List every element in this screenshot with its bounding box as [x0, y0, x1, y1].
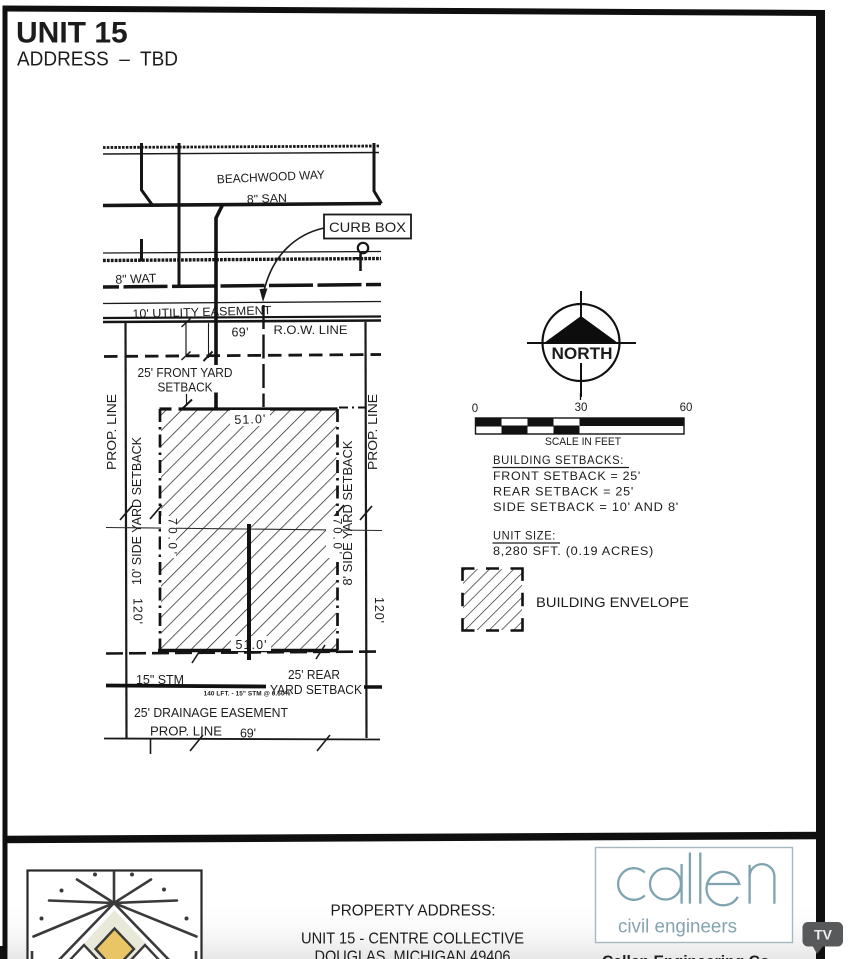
- svg-text:PROP. LINE: PROP. LINE: [365, 394, 380, 470]
- svg-text:DOUGLAS, MICHIGAN 49406: DOUGLAS, MICHIGAN 49406: [315, 949, 511, 959]
- svg-text:SCALE IN FEET: SCALE IN FEET: [545, 436, 621, 448]
- svg-text:UNIT SIZE:: UNIT SIZE:: [493, 529, 556, 543]
- svg-text:8" WAT: 8" WAT: [115, 271, 157, 286]
- svg-text:0: 0: [472, 403, 478, 415]
- svg-text:8,280 SFT. (0.19 ACRES): 8,280 SFT. (0.19 ACRES): [493, 544, 654, 558]
- svg-text:FRONT SETBACK = 25': FRONT SETBACK = 25': [493, 469, 641, 483]
- svg-text:30: 30: [575, 402, 588, 414]
- svg-text:10' SIDE YARD SETBACK: 10' SIDE YARD SETBACK: [129, 437, 144, 585]
- svg-text:8" SAN: 8" SAN: [247, 191, 287, 206]
- svg-text:120': 120': [372, 597, 386, 623]
- svg-text:ADDRESS – TBD: ADDRESS – TBD: [17, 49, 178, 71]
- svg-text:BEACHWOOD WAY: BEACHWOOD WAY: [217, 168, 326, 187]
- svg-text:8' SIDE YARD SETBACK: 8' SIDE YARD SETBACK: [340, 440, 355, 585]
- svg-text:NORTH: NORTH: [552, 345, 613, 363]
- svg-text:civil engineers: civil engineers: [618, 917, 737, 938]
- svg-text:CURB BOX: CURB BOX: [329, 219, 407, 235]
- svg-text:TV: TV: [814, 927, 833, 943]
- svg-text:25' FRONT YARD: 25' FRONT YARD: [138, 366, 233, 380]
- svg-text:YARD SETBACK: YARD SETBACK: [270, 683, 363, 697]
- svg-text:60: 60: [680, 402, 693, 414]
- svg-text:25' DRAINAGE EASEMENT: 25' DRAINAGE EASEMENT: [134, 705, 288, 720]
- svg-text:25' REAR: 25' REAR: [288, 668, 340, 682]
- svg-text:UNIT 15: UNIT 15: [16, 17, 128, 50]
- svg-text:PROP. LINE: PROP. LINE: [150, 725, 222, 739]
- svg-text:SIDE SETBACK = 10' AND 8': SIDE SETBACK = 10' AND 8': [493, 500, 679, 514]
- svg-text:70.0': 70.0': [166, 518, 178, 554]
- svg-text:120': 120': [131, 598, 145, 624]
- svg-text:PROPERTY ADDRESS:: PROPERTY ADDRESS:: [331, 903, 496, 920]
- svg-text:SETBACK: SETBACK: [158, 381, 214, 395]
- svg-text:69': 69': [232, 326, 249, 340]
- svg-text:Callen Engineering Co.: Callen Engineering Co.: [602, 954, 774, 959]
- svg-text:UNIT 15 - CENTRE COLLECTIVE: UNIT 15 - CENTRE COLLECTIVE: [301, 931, 524, 948]
- svg-text:PROP. LINE: PROP. LINE: [104, 394, 119, 470]
- svg-text:BUILDING SETBACKS:: BUILDING SETBACKS:: [493, 453, 624, 467]
- svg-text:R.O.W. LINE: R.O.W. LINE: [274, 323, 348, 337]
- svg-text:51.0': 51.0': [234, 412, 265, 427]
- svg-text:BUILDING ENVELOPE: BUILDING ENVELOPE: [536, 595, 689, 611]
- svg-text:REAR SETBACK = 25': REAR SETBACK = 25': [493, 485, 634, 499]
